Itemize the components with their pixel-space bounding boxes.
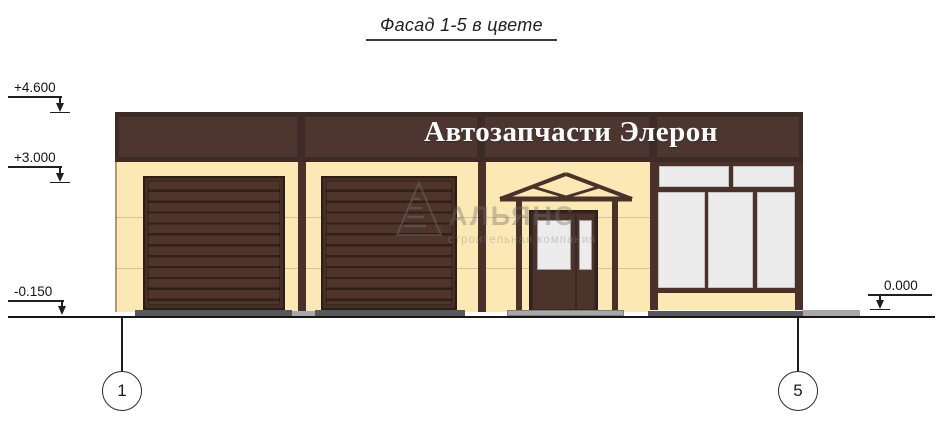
storefront-spandrel [658,293,795,310]
axis-line-1 [121,318,122,371]
elevation-marker-tick [50,182,70,184]
elevation-marker-tick [870,309,890,311]
elevation-marker-leader [8,300,64,302]
signboard-band: Автозапчасти Элерон [115,112,803,162]
ground-line [8,316,935,319]
storefront-window-2 [708,192,753,288]
axis-line-5 [797,318,798,371]
elevation-marker-arrow [58,306,66,315]
porch-post-right [612,197,618,310]
elevation-marker-label: +4.600 [14,80,56,95]
elevation-marker-label: 0.000 [884,278,918,293]
elevation-marker-label: -0.150 [14,284,52,299]
elevation-marker-tick [50,112,70,114]
band-panel [118,116,298,158]
storefront-window-3 [757,192,795,288]
facade-drawing-canvas: Фасад 1-5 в цвете Автозапчасти Элерон [0,0,944,425]
axis-bubble-1: 1 [102,371,142,411]
axis-bubble-5: 5 [778,371,818,411]
elevation-marker-label: +3.000 [14,150,56,165]
door-leaf-main [533,214,575,309]
elevation-marker-leader [868,294,932,296]
storefront-section [650,162,803,310]
section-divider [478,162,486,312]
garage-door-slats [148,181,280,305]
door-leaf-side [577,214,594,309]
door-glass [537,220,571,270]
entry-door [529,210,598,313]
door-glass [579,220,592,270]
axis-bubble-1-label: 1 [117,381,126,401]
sign-text: Автозапчасти Элерон [424,116,718,149]
transom-window-1 [659,166,729,187]
transom-window-2 [733,166,794,187]
wall-left-edge [115,162,117,312]
garage-door-2 [321,176,457,310]
drawing-title: Фасад 1-5 в цвете [366,15,557,41]
storefront-window-1 [658,192,705,288]
garage-door-slats [326,181,452,305]
elevation-marker-leader [8,166,62,168]
elevation-marker-leader [8,96,62,98]
porch-post-left [516,197,522,310]
garage-door-1 [143,176,285,310]
axis-bubble-5-label: 5 [793,381,802,401]
section-divider [298,162,306,312]
